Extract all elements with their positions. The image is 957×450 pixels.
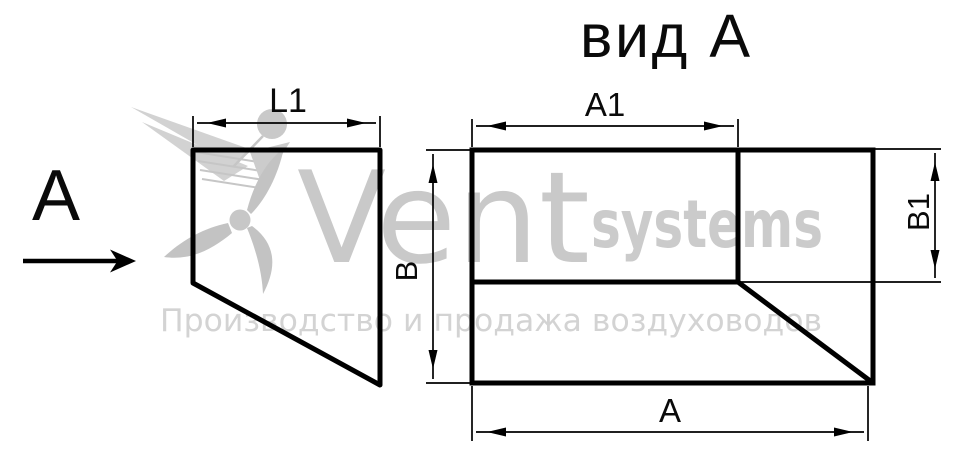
logo-hub-circle <box>230 210 251 231</box>
arrowhead <box>347 119 366 128</box>
arrowhead <box>834 428 853 437</box>
arrowhead <box>931 250 940 269</box>
dim-b1: В1 <box>875 149 941 278</box>
arrowhead <box>487 428 506 437</box>
dim-l1-label: L1 <box>269 82 307 120</box>
arrowhead <box>429 350 438 369</box>
arrowhead <box>487 122 506 131</box>
fan-logo <box>131 107 290 294</box>
dim-b1-label: В1 <box>901 193 936 231</box>
dim-l1: L1 <box>193 82 380 147</box>
watermark-brand-secondary: systems <box>591 186 823 263</box>
dim-a: А <box>472 386 868 441</box>
watermark-brand-primary: Vent <box>297 144 590 292</box>
logo-blade-lower <box>247 226 272 294</box>
dim-a1: А1 <box>472 86 738 147</box>
dim-a-label: А <box>659 392 681 429</box>
view-direction-label: А <box>32 156 80 236</box>
arrowhead <box>931 162 940 181</box>
dim-a1-label: А1 <box>585 86 625 123</box>
technical-drawing-page: Vent systems Производство и продажа возд… <box>0 0 957 450</box>
logo-blade-left <box>164 223 232 258</box>
duct-transition-drawing: Vent systems Производство и продажа возд… <box>0 0 957 450</box>
view-direction-arrow <box>23 250 136 273</box>
arrowhead <box>704 122 723 131</box>
arrowhead <box>207 119 226 128</box>
view-title: вид А <box>580 2 750 70</box>
dim-b-label: В <box>389 261 424 282</box>
